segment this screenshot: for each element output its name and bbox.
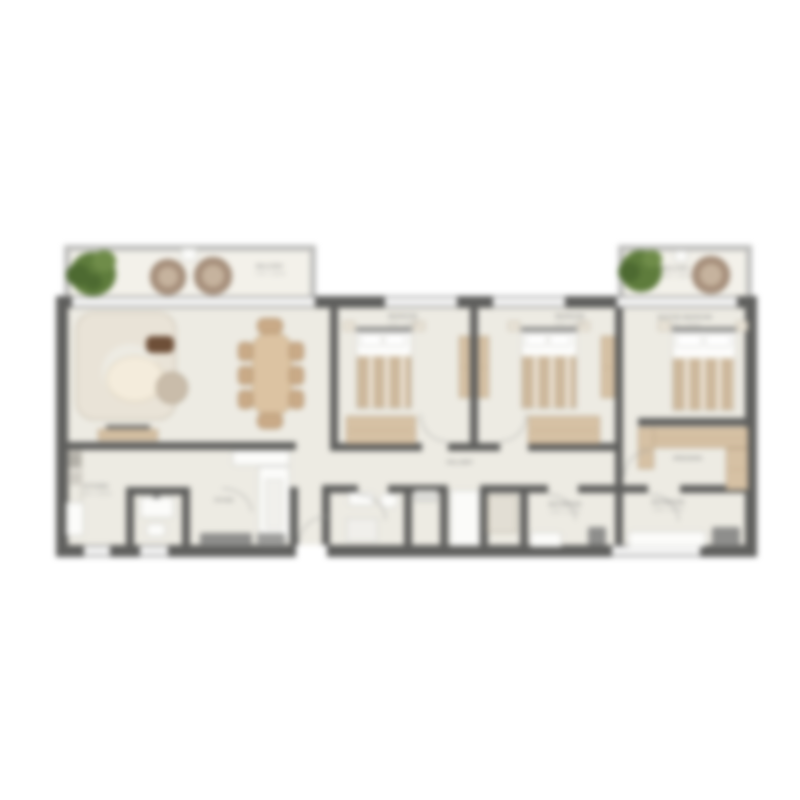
shower-room	[450, 490, 480, 546]
room-label-kitchen: KITCHEN2.00 × 2.90 M	[51, 484, 141, 496]
wall-top-segment	[315, 296, 385, 308]
window-bedroom3	[493, 296, 565, 308]
room-label-bedroom2: BEDROOM3.40 × 3.30 M	[358, 314, 448, 326]
wall-hallbath-top	[528, 485, 548, 493]
wall-hallbath-top	[578, 485, 615, 493]
bed-pillow	[549, 334, 571, 346]
window-balcony-right	[617, 296, 737, 308]
wall-bedroom2-bottom	[448, 443, 470, 451]
bed-duvet	[357, 356, 411, 408]
floor-plan-page: BALCONY7.40 × 1.50 M BALCONY3.60 × 1.50 …	[0, 0, 800, 800]
window-kitchen	[84, 545, 110, 557]
powder-toilet	[146, 523, 166, 537]
wall-top-corner	[56, 296, 72, 308]
wall-utility-divider	[440, 485, 448, 557]
room-label-hall-bathroom: BATHROOM2.30 × 1.60 M	[520, 502, 610, 514]
room-label-master: MASTER BEDROOM3.60 × 3.40 M	[640, 315, 730, 327]
hallbath-toilet	[588, 527, 606, 545]
dining-chair	[238, 390, 253, 409]
bed-pillow	[360, 334, 382, 346]
bed-duvet	[673, 358, 735, 410]
powder-faucet	[153, 495, 160, 499]
wall-top-segment	[737, 296, 757, 308]
entry-step	[257, 533, 285, 546]
bed-pillow	[676, 334, 702, 347]
laundry-unit	[487, 495, 517, 533]
room-label-bedroom3: BEDROOM3.40 × 3.30 M	[525, 314, 615, 326]
wardrobe-master-right	[726, 448, 748, 490]
wall-top-segment	[565, 296, 617, 308]
room-label-hallway: HALLWAY	[415, 460, 505, 467]
room-label-balcony-right: BALCONY3.60 × 1.50 M	[631, 266, 721, 278]
entry-mat	[200, 533, 252, 546]
bath-toilet	[380, 493, 398, 508]
kitchen-island	[66, 502, 84, 536]
hallbath-vanity	[530, 532, 562, 547]
wardrobe-bedroom2	[346, 416, 416, 444]
closet-bedroom3-right	[601, 336, 615, 398]
dining-chair	[289, 390, 304, 409]
wall-bath-top	[388, 485, 404, 493]
nightstand	[736, 321, 748, 331]
plant-leaf-icon	[84, 274, 102, 290]
dining-chair	[289, 342, 304, 361]
tv-console	[98, 429, 158, 441]
sofa-accent-pillow	[146, 336, 174, 353]
masterbath-toilet	[712, 527, 740, 546]
coffee-table	[106, 356, 164, 402]
bed-headboard	[521, 327, 577, 332]
wardrobe-master-top	[645, 427, 748, 448]
window-bedroom2	[385, 296, 457, 308]
masterbath-vanity	[628, 531, 706, 547]
dining-chair	[257, 413, 283, 429]
bed-duvet	[522, 356, 576, 408]
dining-chair	[238, 342, 253, 361]
bed-headboard	[672, 327, 736, 332]
wardrobe-bedroom3	[528, 416, 600, 444]
foyer-cabinet-top	[232, 450, 290, 466]
balcony-side-table	[181, 248, 197, 261]
bed-pillow	[384, 334, 406, 346]
wall-bottom-segment	[56, 545, 84, 557]
bed-headboard	[356, 327, 412, 332]
wall-masterbath-top	[623, 485, 648, 493]
tv-screen	[106, 425, 150, 429]
wall-laundry-top	[488, 485, 520, 493]
dining-chair	[289, 366, 304, 385]
wall-living-bottom	[56, 442, 296, 450]
wall-master-dressing	[638, 418, 745, 426]
wall-bottom-segment	[327, 545, 612, 557]
dining-chair	[257, 318, 283, 334]
bath-shower	[346, 518, 378, 542]
side-table	[156, 372, 188, 404]
wall-top-segment	[457, 296, 493, 308]
bed-pillow	[705, 334, 731, 347]
room-label-balcony-left: BALCONY7.40 × 1.50 M	[225, 264, 315, 276]
room-label-dressing: DRESSING	[643, 456, 733, 463]
wall-living-bedroom2	[330, 308, 338, 451]
wall-bedroom3-master	[615, 308, 623, 557]
room-label-foyer: FOYER	[179, 498, 269, 505]
utility-shelf	[414, 490, 438, 502]
kitchen-appliance	[68, 471, 81, 485]
dining-table	[252, 333, 292, 415]
closet-column	[478, 336, 489, 398]
nightstand	[508, 321, 520, 331]
wall-bath-divider	[404, 485, 412, 557]
wall-bottom-segment	[110, 545, 140, 557]
wall-powder-left	[126, 487, 134, 557]
bed-pillow	[525, 334, 547, 346]
dining-chair	[238, 366, 253, 385]
window-balcony-left	[72, 296, 315, 308]
kitchen-appliance	[68, 452, 81, 468]
room-label-master-bathroom: BATHROOM2.30 × 1.60 M	[623, 500, 713, 512]
wall-bottom-segment	[700, 545, 757, 557]
closet-column	[459, 336, 470, 398]
wall-bedroom3-bottom	[478, 443, 500, 451]
balcony-side-table	[674, 250, 688, 262]
plant-leaf-icon	[92, 250, 116, 272]
wall-bedroom2-bedroom3	[470, 308, 478, 451]
powder-sink	[140, 497, 174, 518]
lounge-chair-cushion	[158, 267, 178, 287]
floor-plan: BALCONY7.40 × 1.50 M BALCONY3.60 × 1.50 …	[0, 0, 800, 800]
wall-bedroom3-bottom	[528, 443, 623, 451]
balcony-right-wall-right	[746, 245, 752, 302]
wall-laundry-divider	[520, 485, 528, 557]
nightstand	[343, 321, 355, 331]
entry-door-opening	[296, 545, 327, 557]
wall-bedroom2-bottom	[330, 443, 422, 451]
lounge-chair-cushion	[202, 265, 224, 287]
window-powder	[140, 545, 168, 557]
